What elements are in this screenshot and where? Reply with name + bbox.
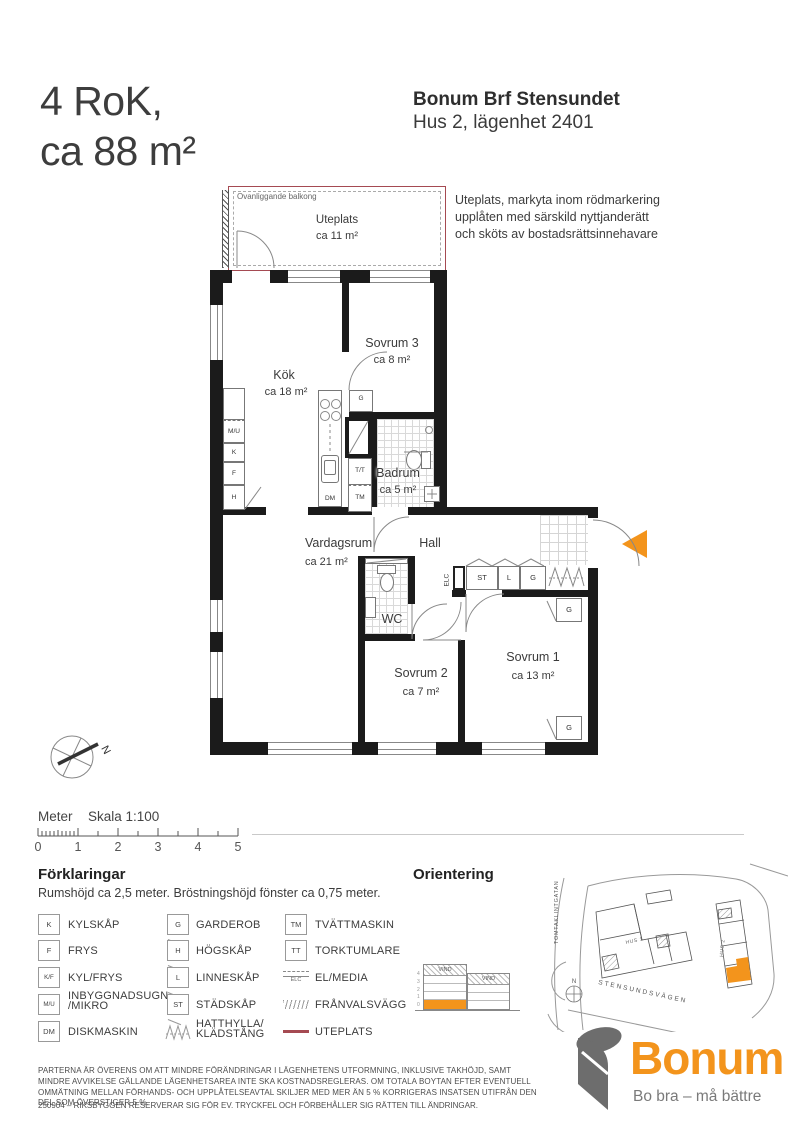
label-mu: M/U <box>228 428 240 435</box>
elevation-block-left: VIND <box>423 964 467 1010</box>
label-g: G <box>358 395 363 402</box>
toilet-tank <box>421 451 431 469</box>
legend-sym-torktumlare: TT <box>285 940 307 961</box>
floorplan-sheet: 4 RoK, ca 88 m² Bonum Brf Stensundet Hus… <box>0 0 810 1145</box>
wall <box>434 283 447 507</box>
wall <box>452 590 466 597</box>
wall <box>210 270 223 305</box>
wc-sink <box>365 597 376 618</box>
uteplats-wall-hatch <box>222 190 229 268</box>
room-wc: WC <box>382 612 403 626</box>
uteplats-dashed-border <box>233 191 441 266</box>
elevation-diagram: 4 3 2 1 0 VIND VIND <box>415 960 520 1018</box>
entry-floor-tiles <box>540 515 588 565</box>
legend-label: FRÅNVALSVÄGG <box>315 994 430 1016</box>
wall <box>340 270 370 283</box>
room-badrum-area: ca 5 m² <box>380 484 417 496</box>
scale-tick: 4 <box>188 840 208 854</box>
room-vardagsrum: Vardagsrum <box>305 536 372 550</box>
legend-label: HÖGSKÅP <box>196 940 288 962</box>
label-g: G <box>530 573 536 582</box>
room-kok-area: ca 18 m² <box>265 386 308 398</box>
legend-sym-diskmaskin: DM <box>38 1021 60 1042</box>
elc-icon-label: ELC <box>283 977 309 983</box>
scale-tick: 3 <box>148 840 168 854</box>
unit-name: Hus 2, lägenhet 2401 <box>413 112 594 134</box>
legend-label: FRYS <box>68 940 168 962</box>
legend-label: STÄDSKÅP <box>196 994 288 1016</box>
wall <box>210 360 223 600</box>
overhead-balcony-label: Ovanliggande balkong <box>237 192 317 201</box>
title-line-1: 4 RoK, <box>40 76 196 126</box>
legend-subtitle: Rumshöjd ca 2,5 meter. Bröstningshöjd fö… <box>38 886 381 900</box>
label-g: G <box>566 605 572 614</box>
cabinet <box>223 388 245 420</box>
label-tm: TM <box>355 494 364 501</box>
uteplats-area: ca 11 m² <box>316 230 358 242</box>
uteplats-line-icon <box>283 1030 309 1033</box>
window <box>210 305 223 360</box>
divider-line <box>252 834 744 835</box>
wall <box>436 742 482 755</box>
legend-label: KYLSKÅP <box>68 914 168 936</box>
legend-sym-ugnmikro: M/U <box>38 994 60 1015</box>
legend-sym-frys: F <box>38 940 60 961</box>
wall <box>430 270 447 283</box>
label-elc: ELC <box>444 561 451 587</box>
legend-label: GARDEROB <box>196 914 288 936</box>
uteplats-note: Uteplats, markyta inom rödmarkering uppl… <box>455 192 665 243</box>
franvalsvagg-icon <box>283 1000 309 1009</box>
room-kok: Kök <box>273 368 295 382</box>
wall <box>458 640 465 742</box>
room-sovrum3-area: ca 8 m² <box>374 354 411 366</box>
legend-label: INBYGGNADSUGN /MIKRO <box>68 990 168 1012</box>
compass-n-label: N <box>98 744 112 757</box>
brand-tagline: Bo bra – må bättre <box>633 1088 761 1106</box>
wall <box>352 742 378 755</box>
wall <box>408 507 590 515</box>
legend-sym-garderob: G <box>167 914 189 935</box>
scale-tick: 0 <box>28 840 48 854</box>
scale-tick: 5 <box>228 840 248 854</box>
label-h: H <box>232 494 237 501</box>
wall <box>408 556 415 604</box>
label-st: ST <box>477 573 487 582</box>
badrum-sink <box>424 486 440 502</box>
wall <box>545 742 598 755</box>
label-f: F <box>232 470 236 477</box>
label-g: G <box>566 723 572 732</box>
revision-text: 250904 – RIKSBYGGEN RESERVERAR SIG FÖR E… <box>38 1101 558 1110</box>
building-hus1-label: HUS 1 <box>625 936 644 946</box>
room-sovrum1: Sovrum 1 <box>506 650 560 664</box>
el-media-icon: ELC <box>283 971 309 983</box>
street-tomtaklintgatan: TOMTAKLINTGATAN <box>554 881 560 944</box>
wall <box>358 634 415 641</box>
room-sovrum2: Sovrum 2 <box>394 666 448 680</box>
shaft-inner <box>349 421 368 454</box>
highlighted-unit <box>726 957 751 983</box>
page-title: 4 RoK, ca 88 m² <box>40 76 196 176</box>
wall <box>342 283 349 352</box>
label-tt: T/T <box>355 467 365 474</box>
room-sovrum1-area: ca 13 m² <box>512 670 555 682</box>
label-dm: DM <box>325 495 335 502</box>
legend-label: TVÄTTMASKIN <box>315 914 430 936</box>
vind-label: VIND <box>424 965 466 976</box>
room-badrum: Badrum <box>376 466 420 480</box>
legend-label: TORKTUMLARE <box>315 940 430 962</box>
legend-heading: Förklaringar <box>38 866 126 883</box>
kitchen-sink-basin <box>324 460 336 475</box>
room-hall: Hall <box>419 536 441 550</box>
map-compass-n: N <box>572 979 576 985</box>
scale-tick: 2 <box>108 840 128 854</box>
legend-sym-linneskap: L <box>167 967 189 988</box>
wall <box>502 590 590 597</box>
wall <box>210 632 223 652</box>
legend-label: DISKMASKIN <box>68 1021 168 1043</box>
legend-sym-kylskap: K <box>38 914 60 935</box>
window <box>370 270 430 283</box>
window <box>482 742 545 755</box>
scale-unit-label: Meter <box>38 809 73 824</box>
wc-toilet-bowl <box>380 573 394 592</box>
wall <box>270 270 288 283</box>
legend-label: HATTHYLLA/ KLÄDSTÅNG <box>196 1018 288 1040</box>
building-hus2-label: HUS 2 <box>719 939 727 957</box>
legend-label: EL/MEDIA <box>315 967 430 989</box>
orientation-heading: Orientering <box>413 866 494 883</box>
elc-box <box>453 566 465 590</box>
bonum-logo-icon <box>572 1026 628 1114</box>
entry-arrow <box>622 530 647 558</box>
legend-sym-tvattmaskin: TM <box>285 914 307 935</box>
wc-niche <box>365 558 408 564</box>
room-sovrum3: Sovrum 3 <box>365 336 419 350</box>
wall <box>588 507 598 518</box>
legend-label: UTEPLATS <box>315 1021 430 1043</box>
legend-label: KYL/FRYS <box>68 967 168 989</box>
window <box>210 652 223 698</box>
wall <box>358 556 365 742</box>
window <box>288 270 340 283</box>
brand-name: Bonum <box>630 1031 783 1085</box>
scale-tick: 1 <box>68 840 88 854</box>
kitchen-counter <box>318 390 342 507</box>
room-sovrum2-area: ca 7 m² <box>403 686 440 698</box>
site-map: N TOMTAKLINTGATAN STENSUNDSVÄGEN HUS 1 H… <box>538 862 788 1032</box>
street-stensundsvagen: STENSUNDSVÄGEN <box>598 978 689 1005</box>
uteplats-label: Uteplats <box>316 214 358 226</box>
scale-ratio-label: Skala 1:100 <box>88 809 159 824</box>
label-l: L <box>507 573 511 582</box>
window <box>378 742 436 755</box>
legend-sym-kylfrys: K/F <box>38 967 60 988</box>
uteplats-outline: Ovanliggande balkong <box>228 186 446 271</box>
wall <box>210 742 268 755</box>
title-line-2: ca 88 m² <box>40 126 196 176</box>
label-k: K <box>232 449 236 456</box>
legend-label: LINNESKÅP <box>196 967 288 989</box>
ground-line <box>415 1010 520 1011</box>
legend-sym-stadskap: ST <box>167 994 189 1015</box>
room-vardagsrum-area: ca 21 m² <box>305 556 348 568</box>
elevation-block-right: VIND <box>467 973 510 1010</box>
legend-sym-hogskap: H <box>167 940 189 961</box>
highlighted-floor <box>424 1000 466 1009</box>
project-name: Bonum Brf Stensundet <box>413 89 620 111</box>
window <box>210 600 223 632</box>
hatthylla-icon <box>165 1023 191 1041</box>
window <box>268 742 352 755</box>
vind-label: VIND <box>468 974 509 985</box>
floor-numbers: 4 3 2 1 0 <box>417 971 420 1010</box>
